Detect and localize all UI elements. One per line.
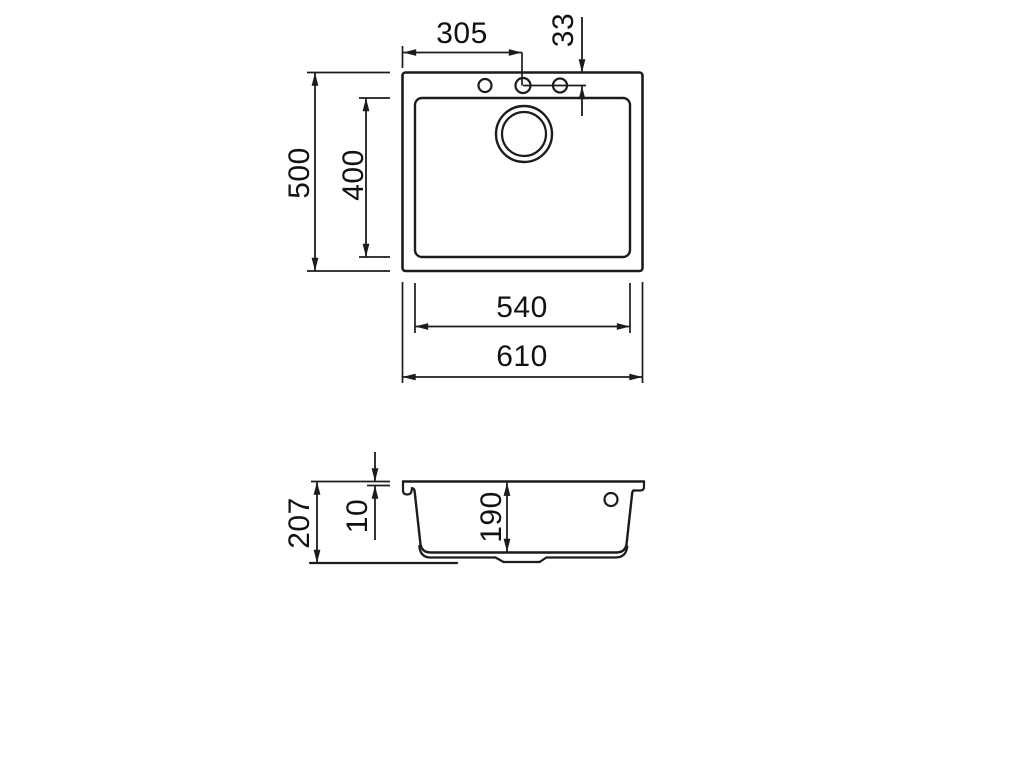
dim-tap-offset-y-label: 33 [547, 13, 580, 47]
section-underside-drain-boss [419, 546, 627, 562]
drawing-svg: 500 400 305 33 540 610 [0, 0, 1024, 768]
section-rim-lip-left [403, 482, 412, 495]
overflow-hole [605, 493, 618, 506]
dim-bowl-depth-label: 400 [337, 149, 370, 201]
dim-rim-thickness-label: 10 [341, 499, 374, 533]
dim-overall-width-label: 610 [496, 340, 548, 373]
sink-technical-drawing: 500 400 305 33 540 610 [0, 0, 1024, 768]
dim-overall-height-label: 207 [283, 497, 316, 549]
top-view: 500 400 305 33 540 610 [283, 13, 643, 383]
dim-overall-depth-label: 500 [283, 147, 316, 199]
dim-bowl-width-label: 540 [496, 291, 548, 324]
section-view: 207 10 190 [283, 452, 644, 563]
dim-bowl-inner-depth-label: 190 [475, 491, 508, 543]
sink-outer-edge [403, 73, 643, 272]
section-bowl-shell [412, 488, 634, 552]
section-rim-lip-right [634, 482, 644, 491]
dim-tap-offset-x-label: 305 [436, 17, 488, 50]
